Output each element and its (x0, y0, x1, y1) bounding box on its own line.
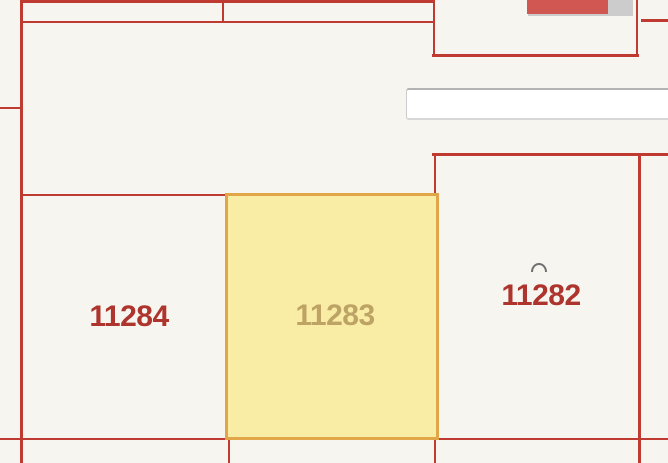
parcel-boundary-line (432, 153, 668, 156)
parcel-map[interactable]: 11284 11283 11282 (0, 0, 668, 463)
parcel-boundary-line (433, 0, 436, 57)
building-footprint (527, 0, 608, 14)
parcel-boundary-line (20, 0, 435, 3)
parcel-boundary-line (636, 0, 639, 56)
parcel-boundary-line (222, 0, 225, 23)
curve-marker-icon (531, 263, 547, 272)
parcel-label-11282: 11282 (501, 281, 580, 311)
parcel-boundary-line (20, 0, 23, 463)
parcel-boundary-line (641, 19, 668, 22)
road-segment (406, 88, 668, 120)
parcel-label-11284: 11284 (89, 302, 168, 332)
parcel-boundary-line (638, 153, 641, 463)
parcel-label-11283: 11283 (295, 301, 374, 331)
parcel-boundary-line (20, 194, 232, 197)
parcel-boundary-line (20, 21, 435, 24)
parcel-boundary-line (432, 54, 639, 57)
